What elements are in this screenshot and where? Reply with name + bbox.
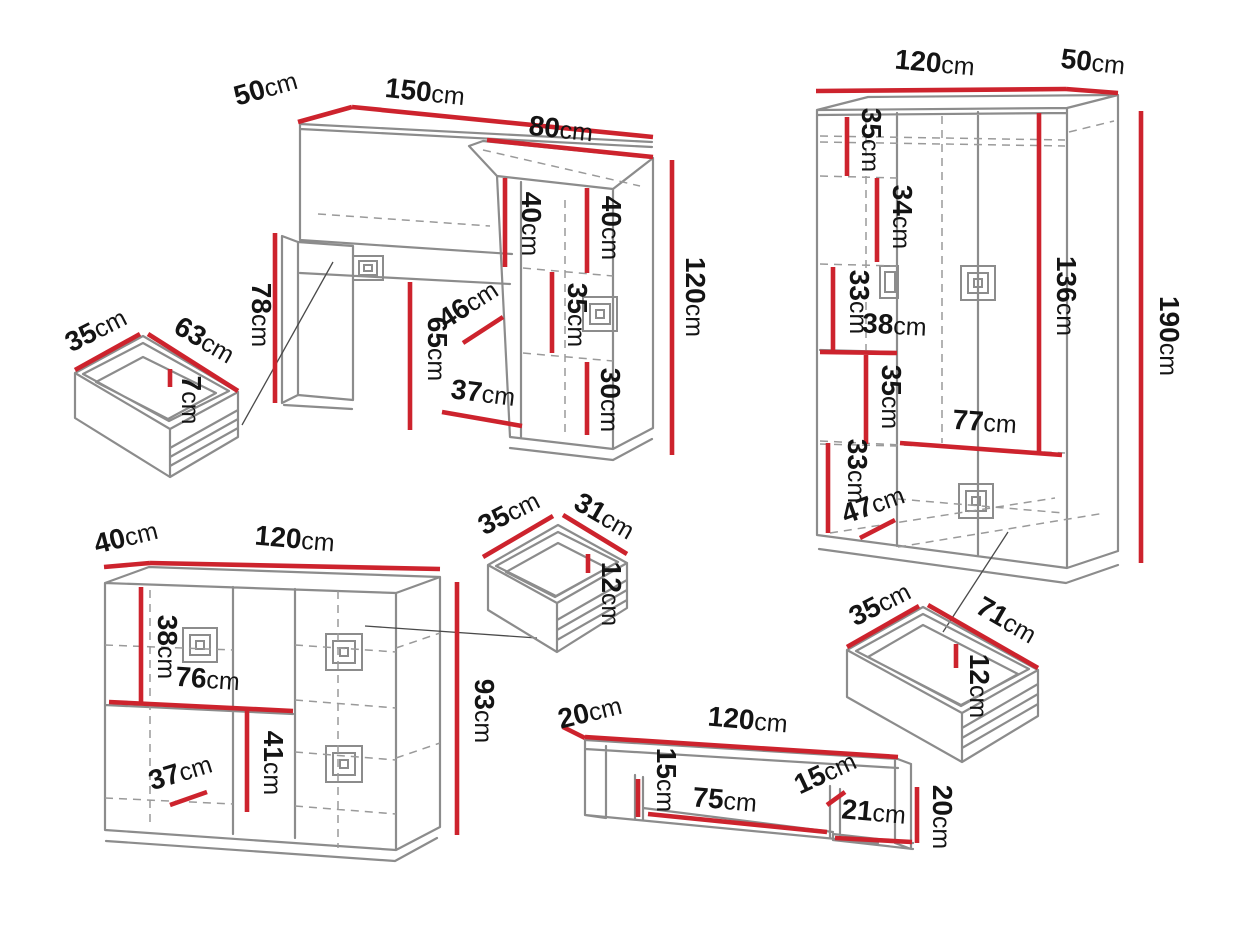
dim-label-wardrobe-shelf4: 35cm (876, 365, 907, 429)
dim-label-small-drawer-height: 7cm (176, 376, 207, 425)
dim-label-chest-width: 120cm (254, 520, 336, 558)
dressing-table-drawing: 50cm 150cm 80cm 40cm 40cm 120cm 78cm 65c… (230, 64, 711, 460)
dim-line-wardrobe-depth (1066, 89, 1118, 93)
chest-body (105, 567, 440, 861)
wardrobe-drawer-handle (959, 484, 993, 518)
dim-label-wardrobe-shelf2: 34cm (887, 185, 918, 249)
dim-label-desk-depth: 50cm (230, 64, 301, 112)
dim-label-chest-depth: 40cm (91, 514, 161, 560)
dim-label-wide-drawer-height: 12cm (964, 654, 995, 718)
dim-label-mid-drawer-height: 12cm (596, 562, 627, 626)
dim-label-hutch-right-h: 40cm (596, 196, 627, 260)
dim-label-shelf-end-height: 15cm (651, 748, 682, 812)
dim-label-shelf-opening: 75cm (691, 781, 758, 818)
dim-label-shelf-ledge: 21cm (840, 793, 907, 830)
dim-label-shelf-lower: 30cm (595, 368, 626, 432)
dim-label-small-drawer-width: 35cm (60, 301, 132, 358)
dim-label-shelf-upper: 35cm (562, 283, 593, 347)
dim-label-desk-width: 150cm (384, 72, 467, 111)
dim-label-shelf-width: 120cm (707, 701, 789, 739)
dim-line-chest-door-width (170, 792, 207, 805)
dim-label-chest-height: 93cm (469, 679, 500, 743)
dim-line-wardrobe-width (816, 89, 1066, 91)
dim-label-chest-door-width: 37cm (145, 748, 216, 796)
dim-label-shelf-right-height: 20cm (927, 785, 958, 849)
dim-label-wardrobe-shelf-width: 38cm (861, 307, 927, 341)
dim-label-wardrobe-inner-height: 136cm (1051, 256, 1082, 336)
dim-label-mid-drawer-width: 35cm (473, 484, 545, 541)
wardrobe-left-door-handle (880, 266, 898, 298)
dim-label-wardrobe-shelf1: 35cm (856, 108, 887, 172)
dim-label-small-drawer-length: 63cm (169, 310, 240, 369)
wall-shelf-drawing: 20cm 120cm 15cm 75cm 15cm 21cm 20cm (555, 689, 958, 849)
dim-label-desk-h: 78cm (246, 283, 277, 347)
dim-label-chest-lower-height: 41cm (258, 731, 289, 795)
mid-drawer-drawing: 35cm 31cm 12cm (473, 484, 641, 652)
small-drawer-drawing: 35cm 63cm 7cm (60, 301, 241, 477)
dim-label-chest-shelf-width: 76cm (174, 661, 240, 696)
dim-label-desk-total-h: 120cm (680, 257, 711, 337)
dim-label-wardrobe-height: 190cm (1154, 296, 1185, 376)
dim-label-hutch-left-h: 40cm (516, 192, 547, 256)
diagram-canvas: 50cm 150cm 80cm 40cm 40cm 120cm 78cm 65c… (0, 0, 1240, 930)
dim-line-desk-depth (298, 107, 352, 122)
dim-label-wardrobe-depth: 50cm (1059, 43, 1126, 81)
chest-to-drawer-pointer (365, 626, 537, 638)
wide-drawer-drawing: 35cm 71cm 12cm (844, 575, 1043, 762)
dim-label-wardrobe-width: 120cm (894, 44, 976, 82)
chest-drawing: 40cm 120cm 38cm 76cm 41cm 37cm 93cm (91, 514, 537, 861)
wardrobe-drawing: 120cm 50cm 35cm 34cm 33cm 38cm 35cm 33cm… (816, 43, 1185, 632)
chest-drawer-handle-top (326, 634, 362, 670)
dim-label-wardrobe-inner-width: 77cm (951, 404, 1017, 439)
chest-door-handle (183, 628, 217, 662)
dim-line-chest-depth (104, 563, 150, 567)
dim-label-shelf-depth: 20cm (555, 689, 625, 735)
dim-line-wardrobe-shelf-width (820, 352, 897, 353)
chest-drawer-handle-bottom (326, 746, 362, 782)
dim-line-desk-width (352, 107, 653, 137)
furniture-dimension-sheet: 50cm 150cm 80cm 40cm 40cm 120cm 78cm 65c… (0, 0, 1240, 930)
